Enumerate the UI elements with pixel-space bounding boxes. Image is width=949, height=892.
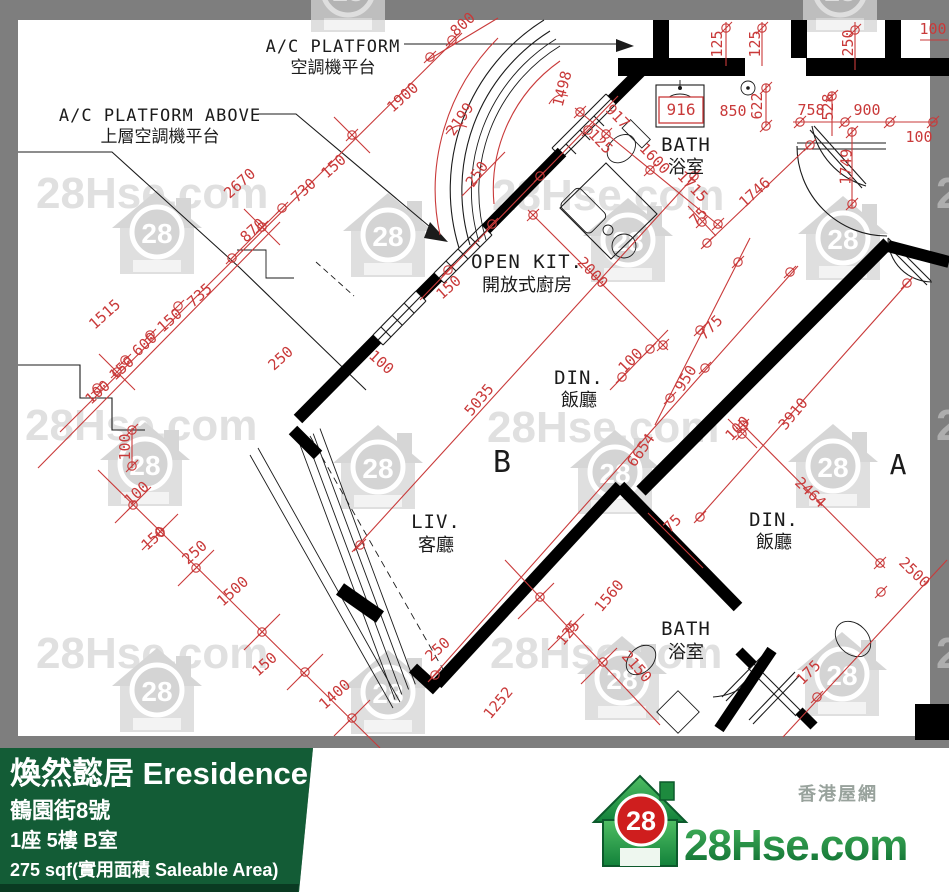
saleable-area: 275 sqf(實用面積 Saleable Area) <box>10 859 278 880</box>
dimension-label: 1749 <box>836 148 855 185</box>
logo-house-door <box>620 848 660 866</box>
site-name: 香港屋網 <box>797 783 878 804</box>
bath-bottom-label-zh: 浴室 <box>668 642 704 663</box>
dimension-label: 125 <box>746 30 764 57</box>
unit-info: 1座 5樓 B室 <box>10 828 118 852</box>
dimension-label: 100 <box>116 433 134 460</box>
dining-a-label: DIN. <box>749 509 799 531</box>
dining-a-label-zh: 飯廳 <box>756 532 792 553</box>
ac-platform-label-zh: 空調機平台 <box>291 58 376 78</box>
estate-address: 鶴園街8號 <box>10 798 110 823</box>
footer-green-border <box>0 884 299 892</box>
ac-platform-label: A/C PLATFORM <box>266 37 401 57</box>
bath-bottom-label: BATH <box>661 618 711 640</box>
footer: 煥然懿居 Eresidence 鶴園街8號 1座 5樓 B室 275 sqf(實… <box>0 748 949 892</box>
dimension-label: 622 <box>748 92 766 119</box>
watermark-text: 28Hse.com <box>936 401 949 450</box>
floorplan-canvas: 28 28Hse.com 28Hse.com 28Hse.com 28Hse.c… <box>0 0 949 892</box>
dimension-label: 850 <box>719 102 746 120</box>
estate-name: 煥然懿居 Eresidence <box>10 756 308 791</box>
dimension-label: 758 <box>797 101 824 119</box>
dimension-label: 125 <box>708 30 726 57</box>
logo-text: 28Hse.com <box>684 821 907 870</box>
dimension-label: 100 <box>905 128 932 146</box>
bath-top-label-zh: 浴室 <box>668 157 704 178</box>
open-kitchen-label-zh: 開放式廚房 <box>482 274 572 296</box>
open-kitchen-label: OPEN KIT. <box>471 251 583 273</box>
unit-a-label: A <box>890 448 907 481</box>
bath-top-label: BATH <box>661 134 711 156</box>
watermark-text: 28Hse.com <box>936 629 949 678</box>
living-label-zh: 客廳 <box>418 535 454 556</box>
ac-platform-above-label-zh: 上層空調機平台 <box>101 127 220 147</box>
dining-b-label: DIN. <box>554 367 604 389</box>
dimension-label: 250 <box>839 29 857 56</box>
ac-platform-above-label: A/C PLATFORM ABOVE <box>59 106 261 126</box>
dimension-label: 916 <box>667 100 696 119</box>
logo-badge-number: 28 <box>626 806 656 836</box>
dimension-label: 900 <box>853 101 880 119</box>
living-label: LIV. <box>411 511 461 533</box>
watermark-text: 28Hse.com <box>936 169 949 218</box>
unit-b-label: B <box>493 445 511 480</box>
dining-b-label-zh: 飯廳 <box>561 390 597 411</box>
floorplan-page: 28 28Hse.com 28Hse.com 28Hse.com 28Hse.c… <box>0 0 949 892</box>
dimension-label: 100 <box>919 20 946 38</box>
logo-chimney <box>660 782 674 800</box>
